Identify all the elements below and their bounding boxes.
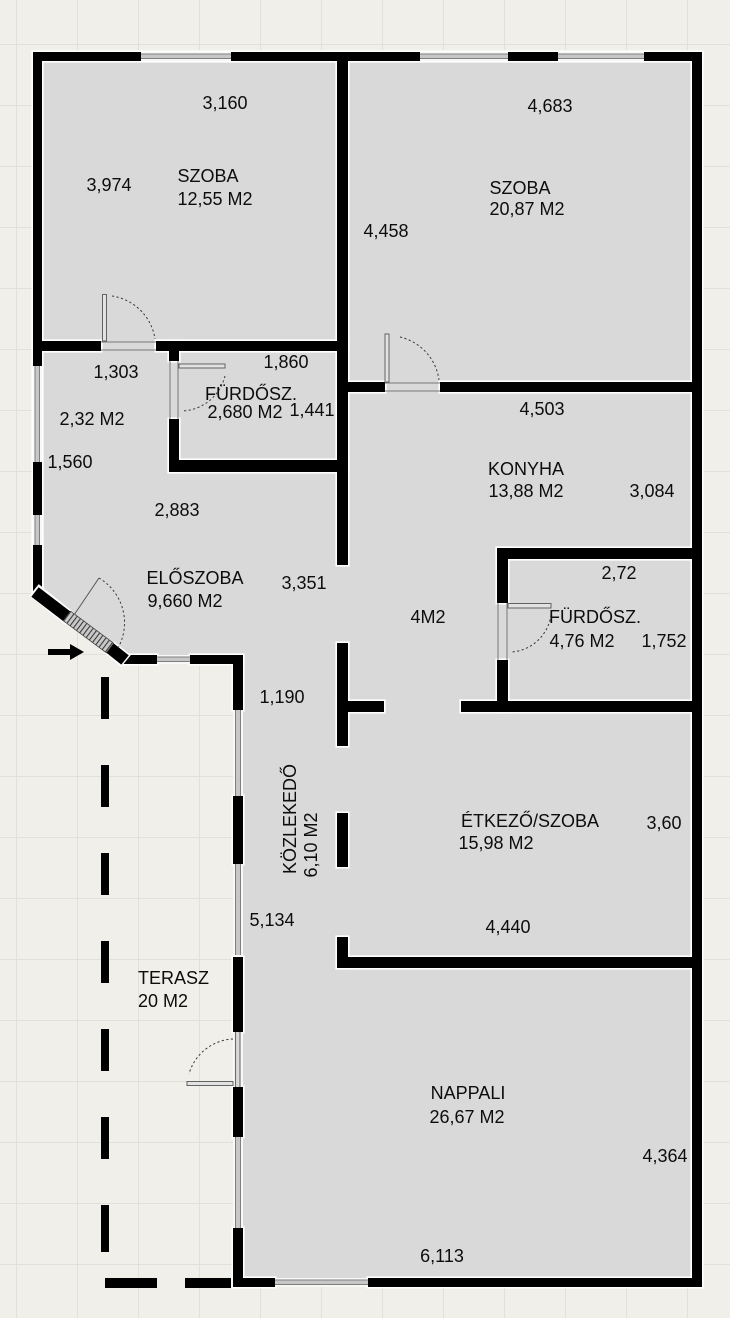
svg-text:6,10 M2: 6,10 M2 [301, 812, 321, 877]
svg-text:3,084: 3,084 [629, 481, 674, 501]
svg-text:1,560: 1,560 [47, 452, 92, 472]
svg-text:1,752: 1,752 [641, 631, 686, 651]
svg-text:2,680 M2: 2,680 M2 [207, 402, 282, 422]
svg-text:3,60: 3,60 [646, 813, 681, 833]
svg-text:6,113: 6,113 [420, 1246, 464, 1266]
svg-text:TERASZ: TERASZ [138, 968, 209, 988]
svg-text:ELŐSZOBA: ELŐSZOBA [146, 567, 243, 588]
svg-text:5,134: 5,134 [249, 910, 294, 930]
svg-text:20,87 M2: 20,87 M2 [489, 199, 564, 219]
svg-text:4M2: 4M2 [410, 607, 445, 627]
svg-text:2,883: 2,883 [154, 500, 199, 520]
svg-text:FÜRDŐSZ.: FÜRDŐSZ. [205, 383, 297, 404]
svg-text:2,32 M2: 2,32 M2 [59, 409, 124, 429]
svg-text:1,441: 1,441 [289, 400, 334, 420]
svg-text:1,303: 1,303 [93, 362, 138, 382]
svg-text:13,88 M2: 13,88 M2 [488, 481, 563, 501]
svg-text:4,458: 4,458 [363, 221, 408, 241]
svg-text:FÜRDŐSZ.: FÜRDŐSZ. [549, 606, 641, 627]
svg-text:3,974: 3,974 [86, 175, 131, 195]
svg-text:4,440: 4,440 [485, 917, 530, 937]
svg-text:SZOBA: SZOBA [177, 166, 238, 186]
svg-text:4,364: 4,364 [642, 1146, 687, 1166]
svg-text:1,860: 1,860 [263, 352, 308, 372]
svg-text:KONYHA: KONYHA [488, 459, 564, 479]
svg-text:4,683: 4,683 [527, 96, 572, 116]
svg-text:15,98 M2: 15,98 M2 [458, 833, 533, 853]
svg-text:3,351: 3,351 [281, 573, 326, 593]
svg-text:ÉTKEZŐ/SZOBA: ÉTKEZŐ/SZOBA [461, 810, 599, 831]
svg-text:KÖZLEKEDŐ: KÖZLEKEDŐ [279, 764, 300, 874]
svg-text:26,67 M2: 26,67 M2 [429, 1107, 504, 1127]
svg-text:3,160: 3,160 [202, 93, 247, 113]
svg-text:9,660 M2: 9,660 M2 [147, 591, 222, 611]
svg-text:NAPPALI: NAPPALI [431, 1083, 506, 1103]
svg-text:4,76 M2: 4,76 M2 [549, 631, 614, 651]
svg-text:12,55 M2: 12,55 M2 [177, 189, 252, 209]
svg-text:1,190: 1,190 [259, 687, 304, 707]
svg-text:4,503: 4,503 [519, 399, 564, 419]
svg-text:20 M2: 20 M2 [138, 991, 188, 1011]
svg-text:SZOBA: SZOBA [489, 178, 550, 198]
svg-text:2,72: 2,72 [601, 563, 636, 583]
